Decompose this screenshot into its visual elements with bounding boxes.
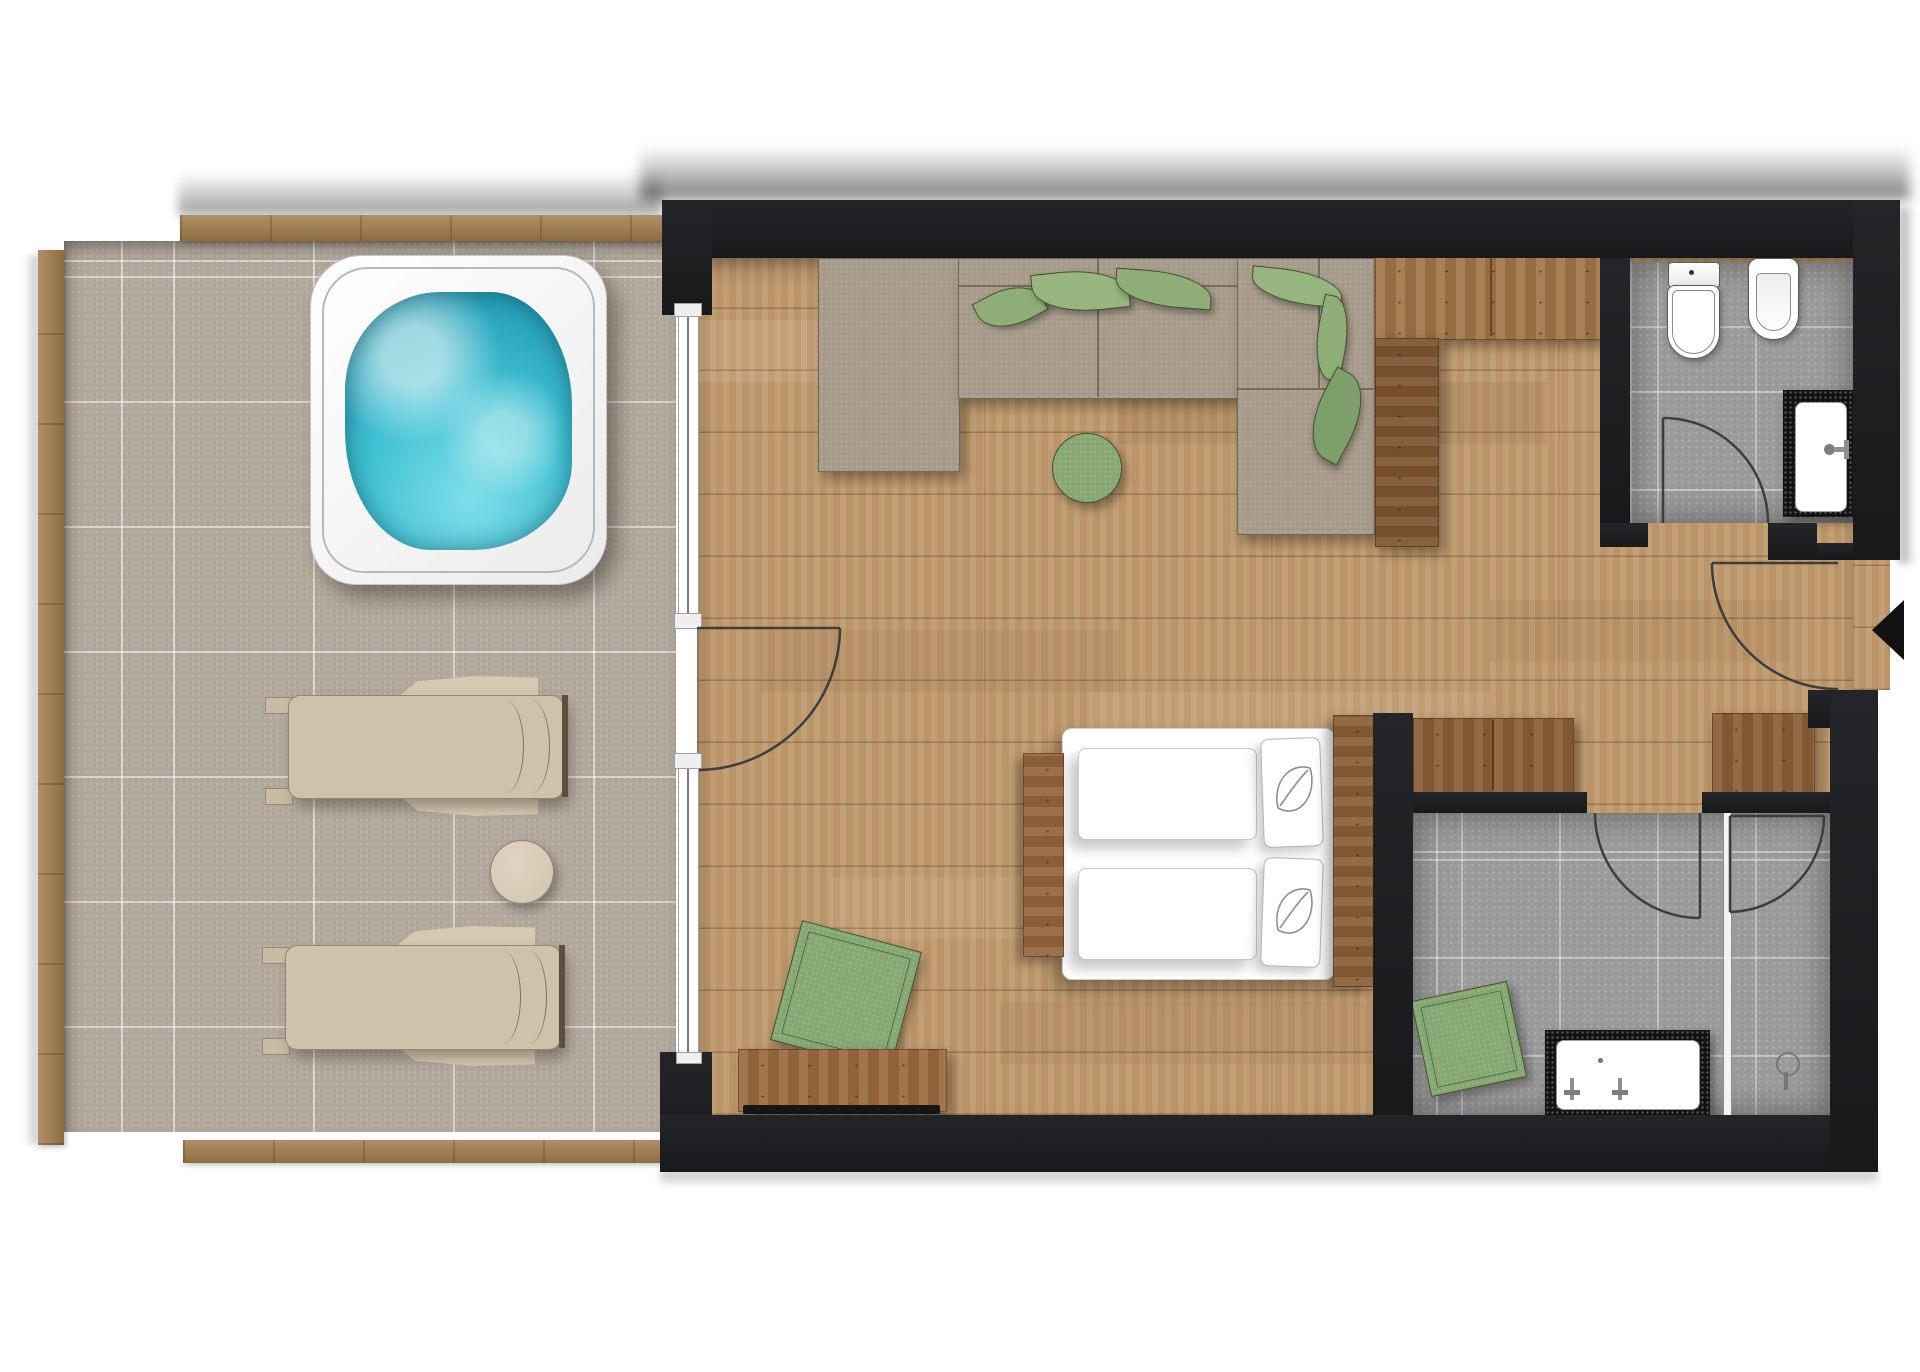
wall-left-upper: [662, 200, 712, 315]
wall-wc-bottom-left: [1600, 523, 1648, 547]
bedroom-cabinet-left: [1413, 718, 1574, 794]
bidet: [1748, 258, 1799, 340]
entrance-arrow-icon: [1872, 600, 1904, 660]
bedroom-rug-border: [781, 931, 911, 1061]
shadow-top: [640, 146, 1910, 200]
window-cap: [674, 303, 702, 317]
hot-tub-water: [345, 292, 572, 550]
wall-wc-left: [1600, 258, 1630, 523]
wardrobe-seam: [1490, 257, 1492, 336]
terrace-deck-strip-left: [38, 250, 64, 1145]
wardrobe-top: [1375, 255, 1602, 340]
wall-entry-jamb: [1808, 690, 1830, 728]
window-cap: [674, 613, 702, 629]
lounger1-backrest-seam-b: [513, 700, 550, 793]
window-lower: [678, 767, 699, 1054]
shadow-bottom: [660, 1171, 1878, 1187]
wc-washbasin: [1795, 402, 1847, 512]
wall-wc-bottom-right: [1768, 523, 1817, 560]
lounger1-head-bar: [562, 695, 568, 797]
bathroom-stool-border: [1420, 990, 1517, 1087]
wall-right-upper: [1853, 200, 1900, 560]
shower-drain: [1776, 1052, 1800, 1076]
shadow-left: [24, 255, 38, 1145]
vanity-faucet-2: [1618, 1078, 1622, 1100]
terrace-side-table: [490, 840, 554, 904]
window-cap: [676, 1052, 702, 1064]
mattress-2: [1078, 868, 1257, 960]
round-pouf: [1052, 433, 1122, 503]
bedroom-cabinet-left-seam: [1492, 720, 1494, 790]
terrace-deck-strip-bottom: [183, 1140, 660, 1163]
vanity-drain: [1598, 1058, 1603, 1063]
toilet-tank-button: [1689, 270, 1694, 275]
bed-foot-bench: [1023, 753, 1064, 957]
mattress-1: [1078, 748, 1257, 840]
wall-bathroom-top-right: [1702, 792, 1830, 813]
sofa-left-module: [818, 258, 960, 472]
pillow-1: [1260, 737, 1324, 848]
terrace-deck-strip-top: [180, 215, 662, 241]
wall-top: [662, 200, 1900, 258]
window-lower-glass-line: [687, 768, 689, 1053]
bedroom-sideboard-base: [743, 1105, 940, 1114]
bedroom-sideboard: [738, 1049, 947, 1112]
wall-bathroom-top-left: [1413, 792, 1587, 813]
wall-bedroom-bathroom: [1373, 713, 1413, 1115]
vanity-faucet-1: [1570, 1078, 1574, 1100]
vanity-faucet-2-bar: [1612, 1090, 1628, 1095]
vanity-faucet-1-bar: [1564, 1090, 1580, 1095]
bidet-basin: [1756, 273, 1791, 331]
window-upper-glass-line: [687, 316, 689, 626]
wc-faucet-handle: [1844, 440, 1849, 459]
wardrobe-leg: [1375, 338, 1439, 547]
bed-headboard: [1333, 715, 1375, 987]
lounger2-backrest-seam-b: [510, 950, 547, 1044]
toilet-bowl: [1667, 285, 1720, 359]
wall-right-lower: [1830, 690, 1878, 1172]
bathroom-stool: [1411, 981, 1527, 1097]
shower-drain-stem: [1784, 1072, 1788, 1090]
shower-glass-partition: [1723, 813, 1732, 1115]
window-cap: [674, 753, 702, 769]
pillow-2: [1260, 857, 1324, 968]
bedroom-cabinet-right: [1712, 713, 1815, 794]
vanity-sink: [1556, 1040, 1700, 1110]
window-upper: [678, 315, 699, 627]
shadow-right: [1899, 208, 1916, 564]
shadow-top-terrace: [178, 172, 662, 215]
hot-tub: [310, 255, 607, 585]
wall-bottom: [660, 1115, 1878, 1172]
lounger2-head-bar: [559, 945, 565, 1048]
toilet-bowl-rim: [1672, 290, 1715, 354]
floorplan-canvas: [0, 0, 1920, 1372]
